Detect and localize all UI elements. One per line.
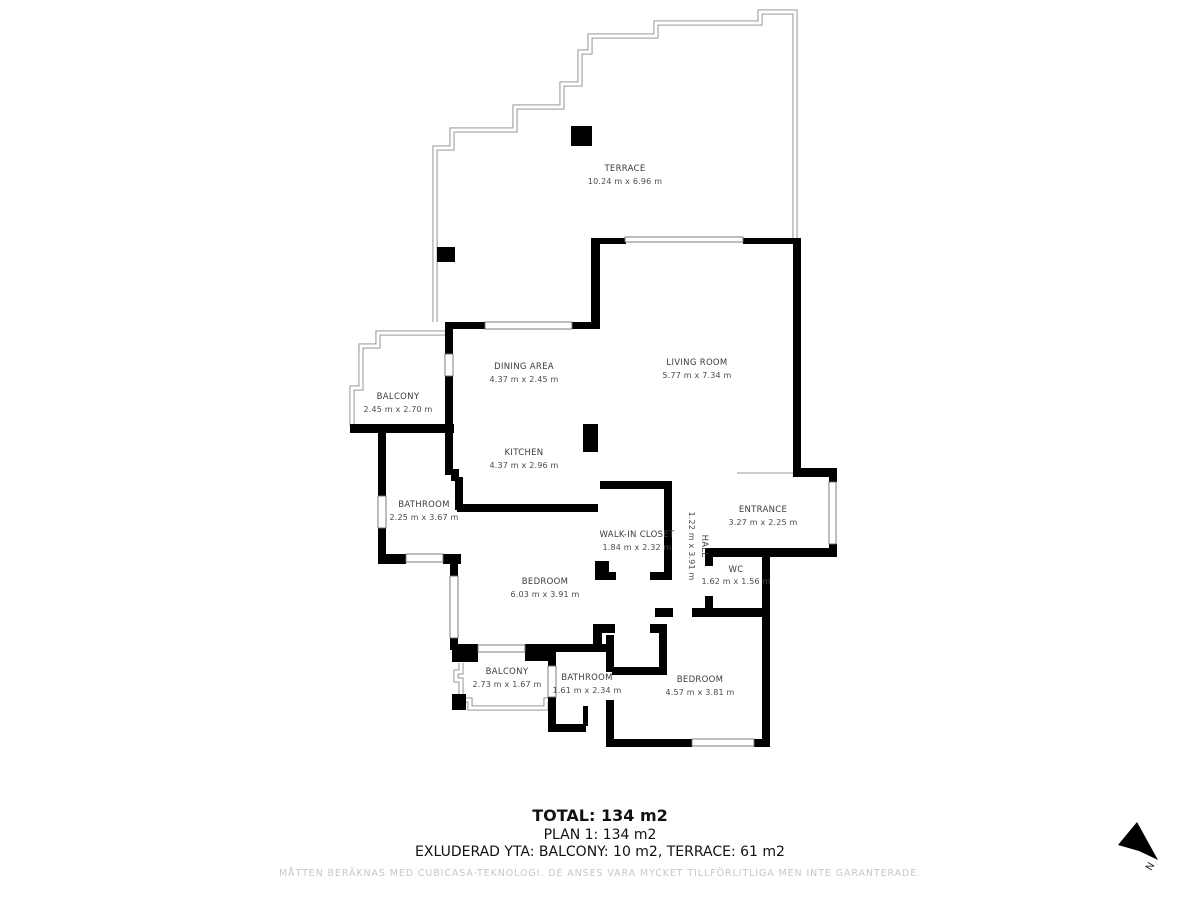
svg-text:BEDROOM: BEDROOM: [677, 675, 723, 685]
svg-text:1.22 m x 3.91 m: 1.22 m x 3.91 m: [687, 511, 696, 580]
svg-text:4.57 m x 3.81 m: 4.57 m x 3.81 m: [665, 688, 734, 697]
svg-text:DINING AREA: DINING AREA: [494, 362, 554, 372]
total-area-text: TOTAL: 134 m2: [0, 806, 1200, 825]
pillars-layer: [437, 126, 598, 452]
terrace-pillar-center: [571, 126, 592, 146]
floorplan-canvas: TERRACE 10.24 m x 6.96 m LIVING ROOM 5.7…: [0, 0, 1200, 900]
svg-text:5.77 m x 7.34 m: 5.77 m x 7.34 m: [662, 371, 731, 380]
room-label-living-room: LIVING ROOM 5.77 m x 7.34 m: [662, 358, 731, 380]
svg-text:4.37 m x 2.45 m: 4.37 m x 2.45 m: [489, 375, 558, 384]
svg-text:ENTRANCE: ENTRANCE: [739, 505, 787, 515]
terrace-pillar-left: [437, 247, 455, 262]
room-label-entrance: ENTRANCE 3.27 m x 2.25 m: [728, 505, 797, 527]
room-label-bedroom-2: BEDROOM 4.57 m x 3.81 m: [665, 675, 734, 697]
room-label-walk-in-closet: WALK-IN CLOSET 1.84 m x 2.32 m: [599, 530, 675, 552]
kitchen-living-pillar: [583, 424, 598, 452]
room-label-wc: WC 1.62 m x 1.56 m: [701, 565, 770, 586]
plan-area-text: PLAN 1: 134 m2: [0, 827, 1200, 843]
room-label-kitchen: KITCHEN 4.37 m x 2.96 m: [489, 448, 558, 470]
svg-text:BEDROOM: BEDROOM: [522, 577, 568, 587]
svg-text:TERRACE: TERRACE: [603, 164, 645, 174]
room-label-bedroom-1: BEDROOM 6.03 m x 3.91 m: [510, 577, 579, 599]
svg-text:KITCHEN: KITCHEN: [505, 448, 544, 458]
svg-text:10.24 m x 6.96 m: 10.24 m x 6.96 m: [588, 177, 662, 186]
room-label-terrace: TERRACE 10.24 m x 6.96 m: [588, 164, 662, 186]
walls-layer: [350, 238, 837, 747]
svg-text:1.62 m x 1.56 m: 1.62 m x 1.56 m: [701, 577, 770, 586]
svg-text:2.73 m x 1.67 m: 2.73 m x 1.67 m: [472, 680, 541, 689]
svg-text:WALK-IN CLOSET: WALK-IN CLOSET: [599, 530, 675, 540]
svg-text:3.27 m x 2.25 m: 3.27 m x 2.25 m: [728, 518, 797, 527]
room-label-bathroom-1: BATHROOM 2.25 m x 3.67 m: [389, 500, 458, 522]
svg-text:BALCONY: BALCONY: [377, 392, 420, 402]
svg-text:1.61 m x 2.34 m: 1.61 m x 2.34 m: [552, 686, 621, 695]
svg-text:BALCONY: BALCONY: [486, 667, 529, 677]
svg-text:1.84 m x 2.32 m: 1.84 m x 2.32 m: [602, 543, 671, 552]
svg-text:2.25 m x 3.67 m: 2.25 m x 3.67 m: [389, 513, 458, 522]
svg-text:6.03 m x 3.91 m: 6.03 m x 3.91 m: [510, 590, 579, 599]
disclaimer-text: MÅTTEN BERÄKNAS MED CUBICASA-TEKNOLOGI. …: [0, 868, 1200, 879]
svg-text:BATHROOM: BATHROOM: [398, 500, 450, 510]
room-label-balcony-bottom: BALCONY 2.73 m x 1.67 m: [472, 667, 541, 689]
excluded-area-text: EXLUDERAD YTA: BALCONY: 10 m2, TERRACE: …: [0, 844, 1200, 860]
room-label-balcony-left: BALCONY 2.45 m x 2.70 m: [363, 392, 432, 414]
svg-text:4.37 m x 2.96 m: 4.37 m x 2.96 m: [489, 461, 558, 470]
svg-text:BATHROOM: BATHROOM: [561, 673, 613, 683]
svg-text:2.45 m x 2.70 m: 2.45 m x 2.70 m: [363, 405, 432, 414]
room-label-dining-area: DINING AREA 4.37 m x 2.45 m: [489, 362, 558, 384]
svg-text:HALL: HALL: [699, 535, 709, 558]
svg-text:LIVING ROOM: LIVING ROOM: [666, 358, 727, 368]
room-label-hall: HALL 1.22 m x 3.91 m: [687, 511, 709, 580]
floorplan-drawing: TERRACE 10.24 m x 6.96 m LIVING ROOM 5.7…: [0, 0, 1200, 900]
room-label-bathroom-2: BATHROOM 1.61 m x 2.34 m: [552, 673, 621, 695]
svg-text:WC: WC: [729, 565, 744, 575]
